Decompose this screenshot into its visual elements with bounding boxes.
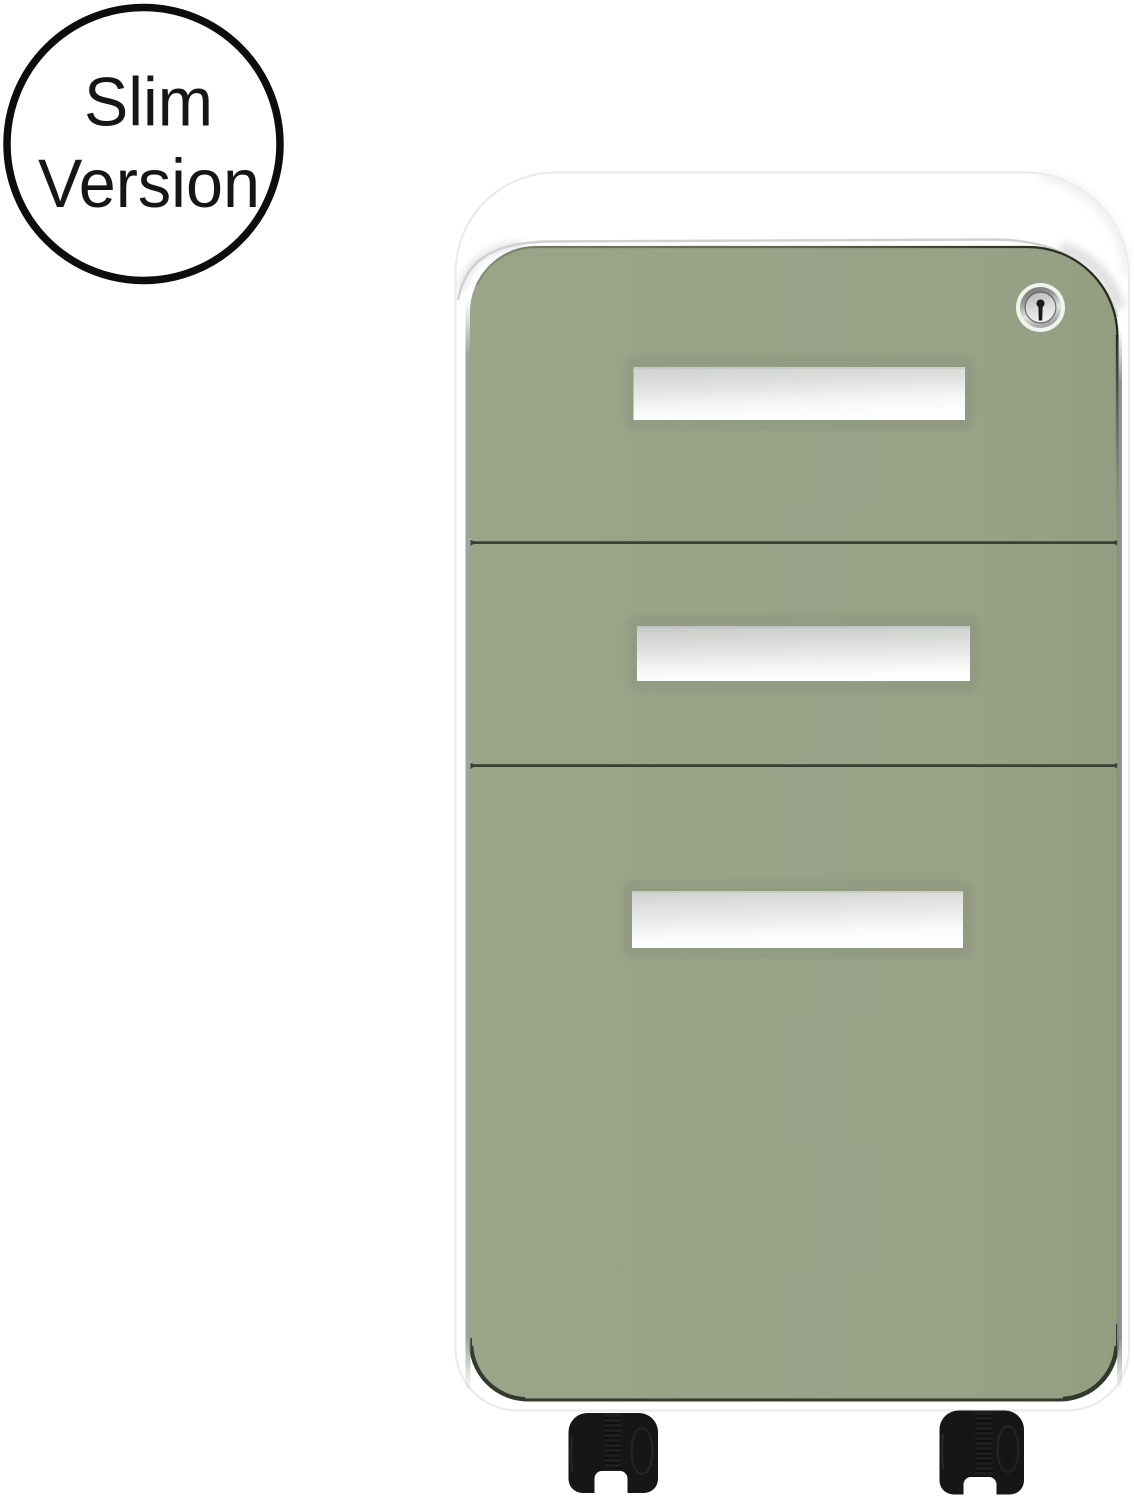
svg-text:Version: Version <box>38 145 260 222</box>
svg-text:Slim: Slim <box>84 64 213 141</box>
